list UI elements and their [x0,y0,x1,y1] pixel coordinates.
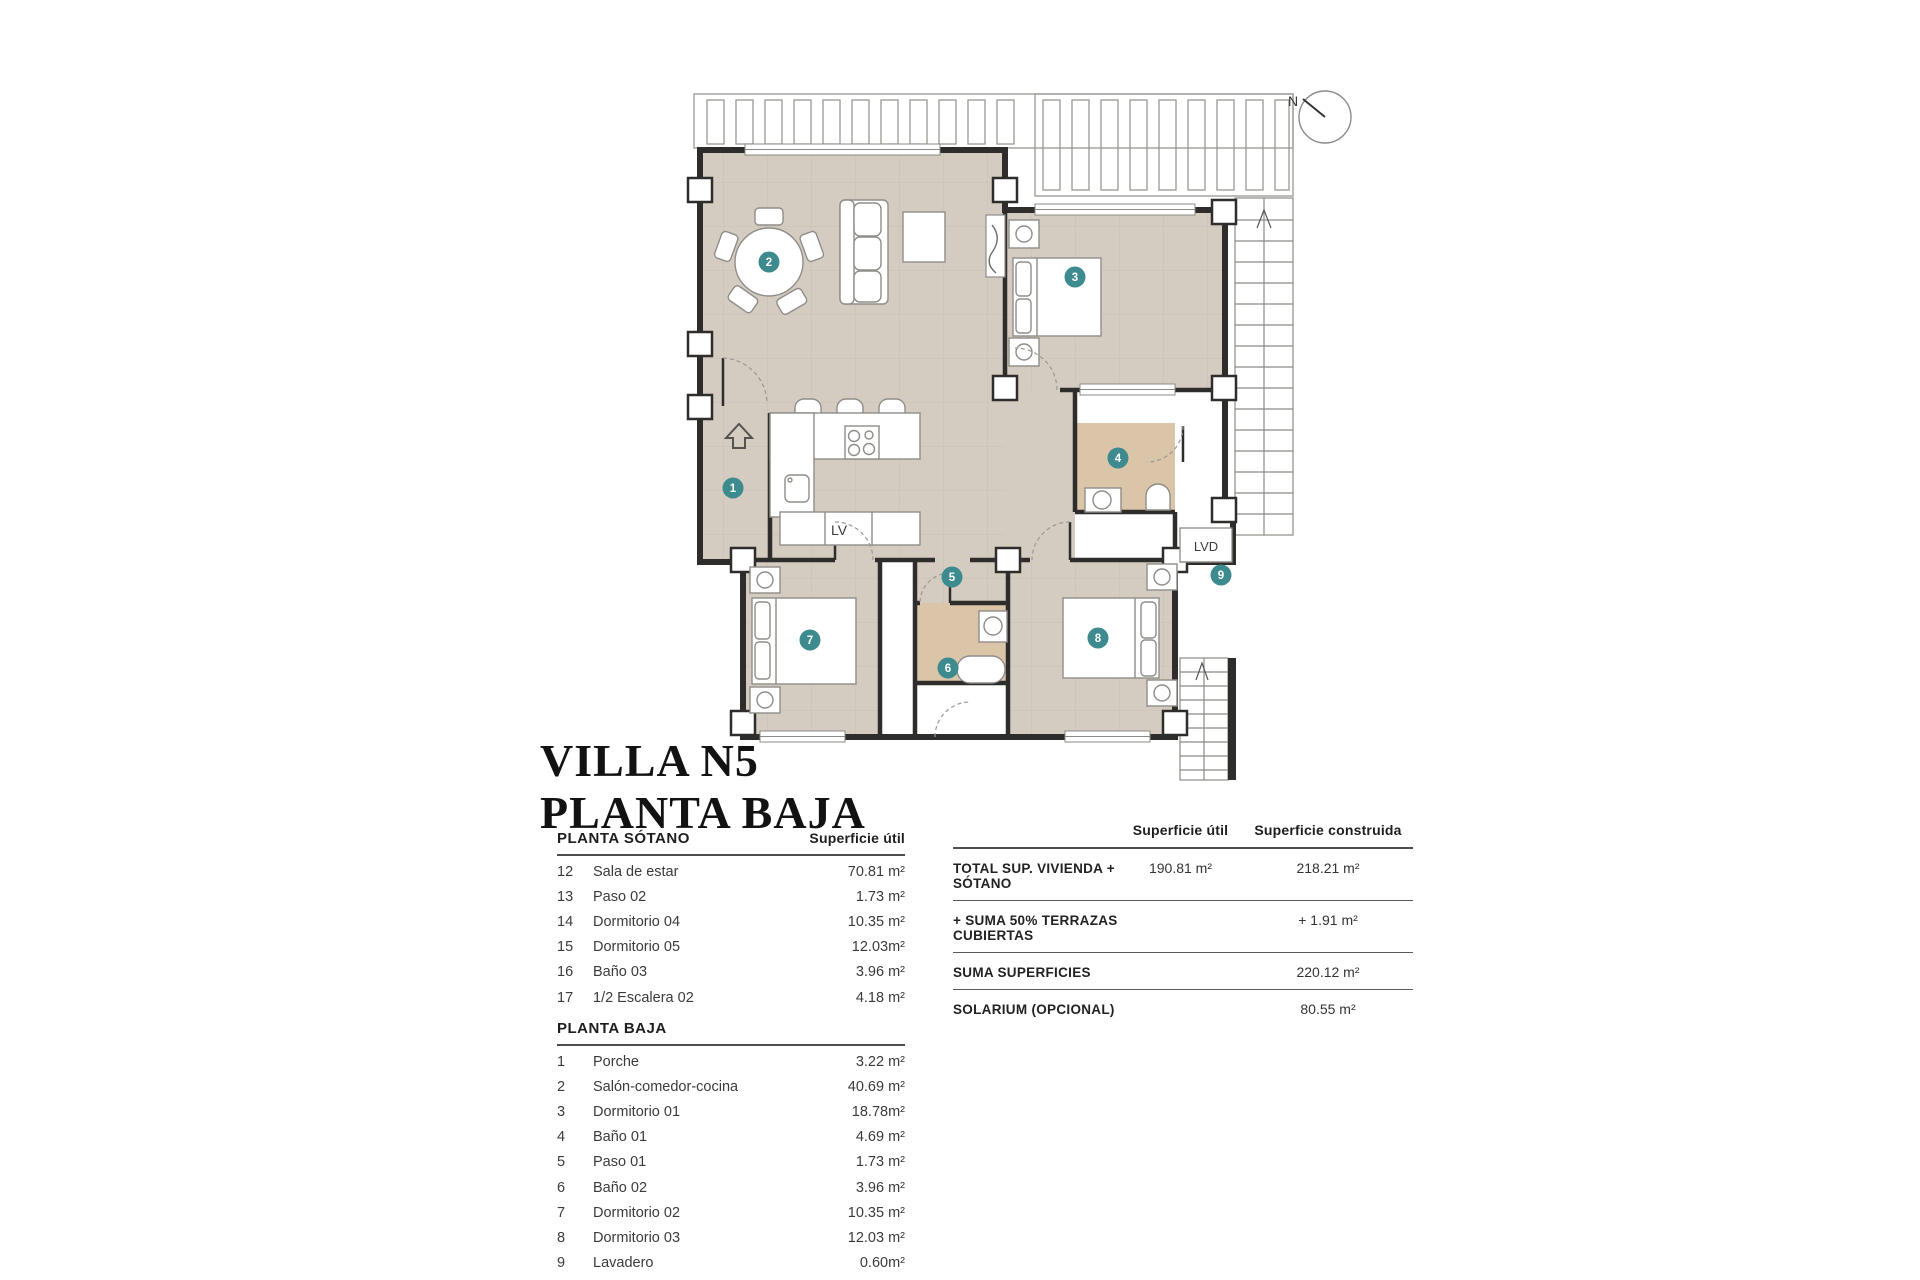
room-name: Baño 01 [593,1129,856,1145]
room-name: Sala de estar [593,864,848,880]
room-area: 10.35 m² [848,914,905,930]
table-row: 12 Sala de estar 70.81 m² [557,859,905,884]
summary-rows: TOTAL SUP. VIVIENDA + SÓTANO 190.81 m² 2… [953,849,1413,1026]
north-label: N [1288,93,1298,109]
summary-constr-value: 80.55 m² [1243,1001,1413,1017]
section-header-baja: PLANTA BAJA [557,1020,905,1046]
room-name: Porche [593,1054,856,1070]
summary-label: + SUMA 50% TERRAZAS CUBIERTAS [953,913,1118,943]
room-number: 6 [557,1180,593,1196]
svg-text:3: 3 [1072,272,1078,284]
laundry-unit: LVD [1180,528,1232,562]
column-header-superficie-util: Superficie útil [1118,822,1243,838]
summary-label: TOTAL SUP. VIVIENDA + SÓTANO [953,861,1118,891]
marker-bano-01: 4 [1108,448,1129,469]
svg-text:9: 9 [1218,570,1224,582]
room-number: 17 [557,990,593,1006]
table-row: 17 1/2 Escalera 02 4.18 m² [557,985,905,1010]
room-name: Dormitorio 02 [593,1205,848,1221]
room-name: Dormitorio 05 [593,939,852,955]
room-number: 9 [557,1255,593,1271]
summary-constr-value: 218.21 m² [1243,860,1413,876]
room-areas-table: PLANTA SÓTANO Superficie útil 12 Sala de… [557,830,905,1280]
marker-porche: 1 [723,478,744,499]
room-area: 70.81 m² [848,864,905,880]
table-row: 13 Paso 02 1.73 m² [557,884,905,909]
room-name: Paso 02 [593,889,856,905]
baja-rows: 1 Porche 3.22 m² 2 Salón-comedor-cocina … [557,1049,905,1276]
summary-table: Superficie útil Superficie construida TO… [953,822,1413,1026]
room-number: 8 [557,1230,593,1246]
svg-text:7: 7 [807,635,813,647]
table-row: 9 Lavadero 0.60m² [557,1251,905,1276]
room-number: 7 [557,1205,593,1221]
room-name: 1/2 Escalera 02 [593,990,856,1006]
sotano-rows: 12 Sala de estar 70.81 m² 13 Paso 02 1.7… [557,859,905,1010]
room-name: Lavadero [593,1255,860,1271]
section-title: PLANTA SÓTANO [557,830,690,847]
room-number: 13 [557,889,593,905]
marker-dormitorio-01: 3 [1065,267,1086,288]
room-area: 1.73 m² [856,889,905,905]
section-title: PLANTA BAJA [557,1020,667,1037]
room-name: Baño 03 [593,964,856,980]
table-row: 14 Dormitorio 04 10.35 m² [557,909,905,934]
room-number: 12 [557,864,593,880]
room-area: 4.69 m² [856,1129,905,1145]
table-row: 4 Baño 01 4.69 m² [557,1125,905,1150]
summary-row: + SUMA 50% TERRAZAS CUBIERTAS + 1.91 m² [953,901,1413,953]
room-area: 4.18 m² [856,990,905,1006]
marker-dormitorio-02: 7 [800,630,821,651]
sink-icon [785,475,809,502]
stairs-upper [1235,198,1293,535]
table-row: 15 Dormitorio 05 12.03m² [557,935,905,960]
marker-dormitorio-03: 8 [1088,628,1109,649]
table-row: 1 Porche 3.22 m² [557,1049,905,1074]
coffee-table [903,212,945,262]
svg-text:1: 1 [730,483,737,495]
table-row: 16 Baño 03 3.96 m² [557,960,905,985]
table-row: 3 Dormitorio 01 18.78m² [557,1100,905,1125]
room-number: 1 [557,1054,593,1070]
room-name: Dormitorio 04 [593,914,848,930]
svg-text:6: 6 [945,663,951,675]
room-name: Baño 02 [593,1180,856,1196]
room-area: 3.96 m² [856,964,905,980]
cooktop-icon [845,426,879,459]
room-number: 3 [557,1104,593,1120]
room-area: 0.60m² [860,1255,905,1271]
table-row: 7 Dormitorio 02 10.35 m² [557,1200,905,1225]
floor-plan-svg: LV [635,50,1425,810]
room-name: Dormitorio 03 [593,1230,848,1246]
summary-row: SOLARIUM (OPCIONAL) 80.55 m² [953,990,1413,1026]
marker-salon: 2 [759,252,780,273]
room-area: 1.73 m² [856,1154,905,1170]
stairs-lower [1180,658,1236,780]
table-row: 2 Salón-comedor-cocina 40.69 m² [557,1074,905,1099]
svg-text:8: 8 [1095,633,1102,645]
room-name: Salón-comedor-cocina [593,1079,848,1095]
summary-row: TOTAL SUP. VIVIENDA + SÓTANO 190.81 m² 2… [953,849,1413,901]
section-header-sotano: PLANTA SÓTANO Superficie útil [557,830,905,856]
svg-text:2: 2 [766,257,772,269]
room-number: 15 [557,939,593,955]
kitchen-lv-label: LV [831,522,848,538]
table-row: 6 Baño 02 3.96 m² [557,1175,905,1200]
summary-label: SUMA SUPERFICIES [953,965,1118,980]
marker-lavadero: 9 [1211,565,1232,586]
room-name: Paso 01 [593,1154,856,1170]
decor-plant [986,215,1005,277]
room-number: 14 [557,914,593,930]
table-row: 8 Dormitorio 03 12.03 m² [557,1225,905,1250]
column-header-superficie-construida: Superficie construida [1243,822,1413,838]
room-area: 12.03 m² [848,1230,905,1246]
room-name: Dormitorio 01 [593,1104,852,1120]
room-number: 4 [557,1129,593,1145]
room-number: 2 [557,1079,593,1095]
summary-header: Superficie útil Superficie construida [953,822,1413,849]
floor-plan: LV [635,50,1425,810]
north-compass-icon: N [1288,91,1351,143]
column-header-superficie-util: Superficie útil [809,830,905,846]
title-line-1: VILLA N5 [540,735,866,787]
marker-bano-02: 6 [938,658,959,679]
svg-text:4: 4 [1115,453,1122,465]
page-title: VILLA N5 PLANTA BAJA [540,735,866,840]
summary-label: SOLARIUM (OPCIONAL) [953,1002,1118,1017]
table-row: 5 Paso 01 1.73 m² [557,1150,905,1175]
room-number: 5 [557,1154,593,1170]
summary-util-value: 190.81 m² [1118,860,1243,876]
room-area: 12.03m² [852,939,905,955]
room-area: 18.78m² [852,1104,905,1120]
room-area: 10.35 m² [848,1205,905,1221]
svg-text:5: 5 [949,572,956,584]
sofa [840,200,888,304]
summary-constr-value: + 1.91 m² [1243,912,1413,928]
page: LV [0,0,1920,1280]
room-number: 16 [557,964,593,980]
room-area: 40.69 m² [848,1079,905,1095]
laundry-lvd-label: LVD [1194,539,1218,554]
marker-paso-01: 5 [942,567,963,588]
summary-row: SUMA SUPERFICIES 220.12 m² [953,953,1413,990]
room-area: 3.96 m² [856,1180,905,1196]
room-area: 3.22 m² [856,1054,905,1070]
summary-constr-value: 220.12 m² [1243,964,1413,980]
